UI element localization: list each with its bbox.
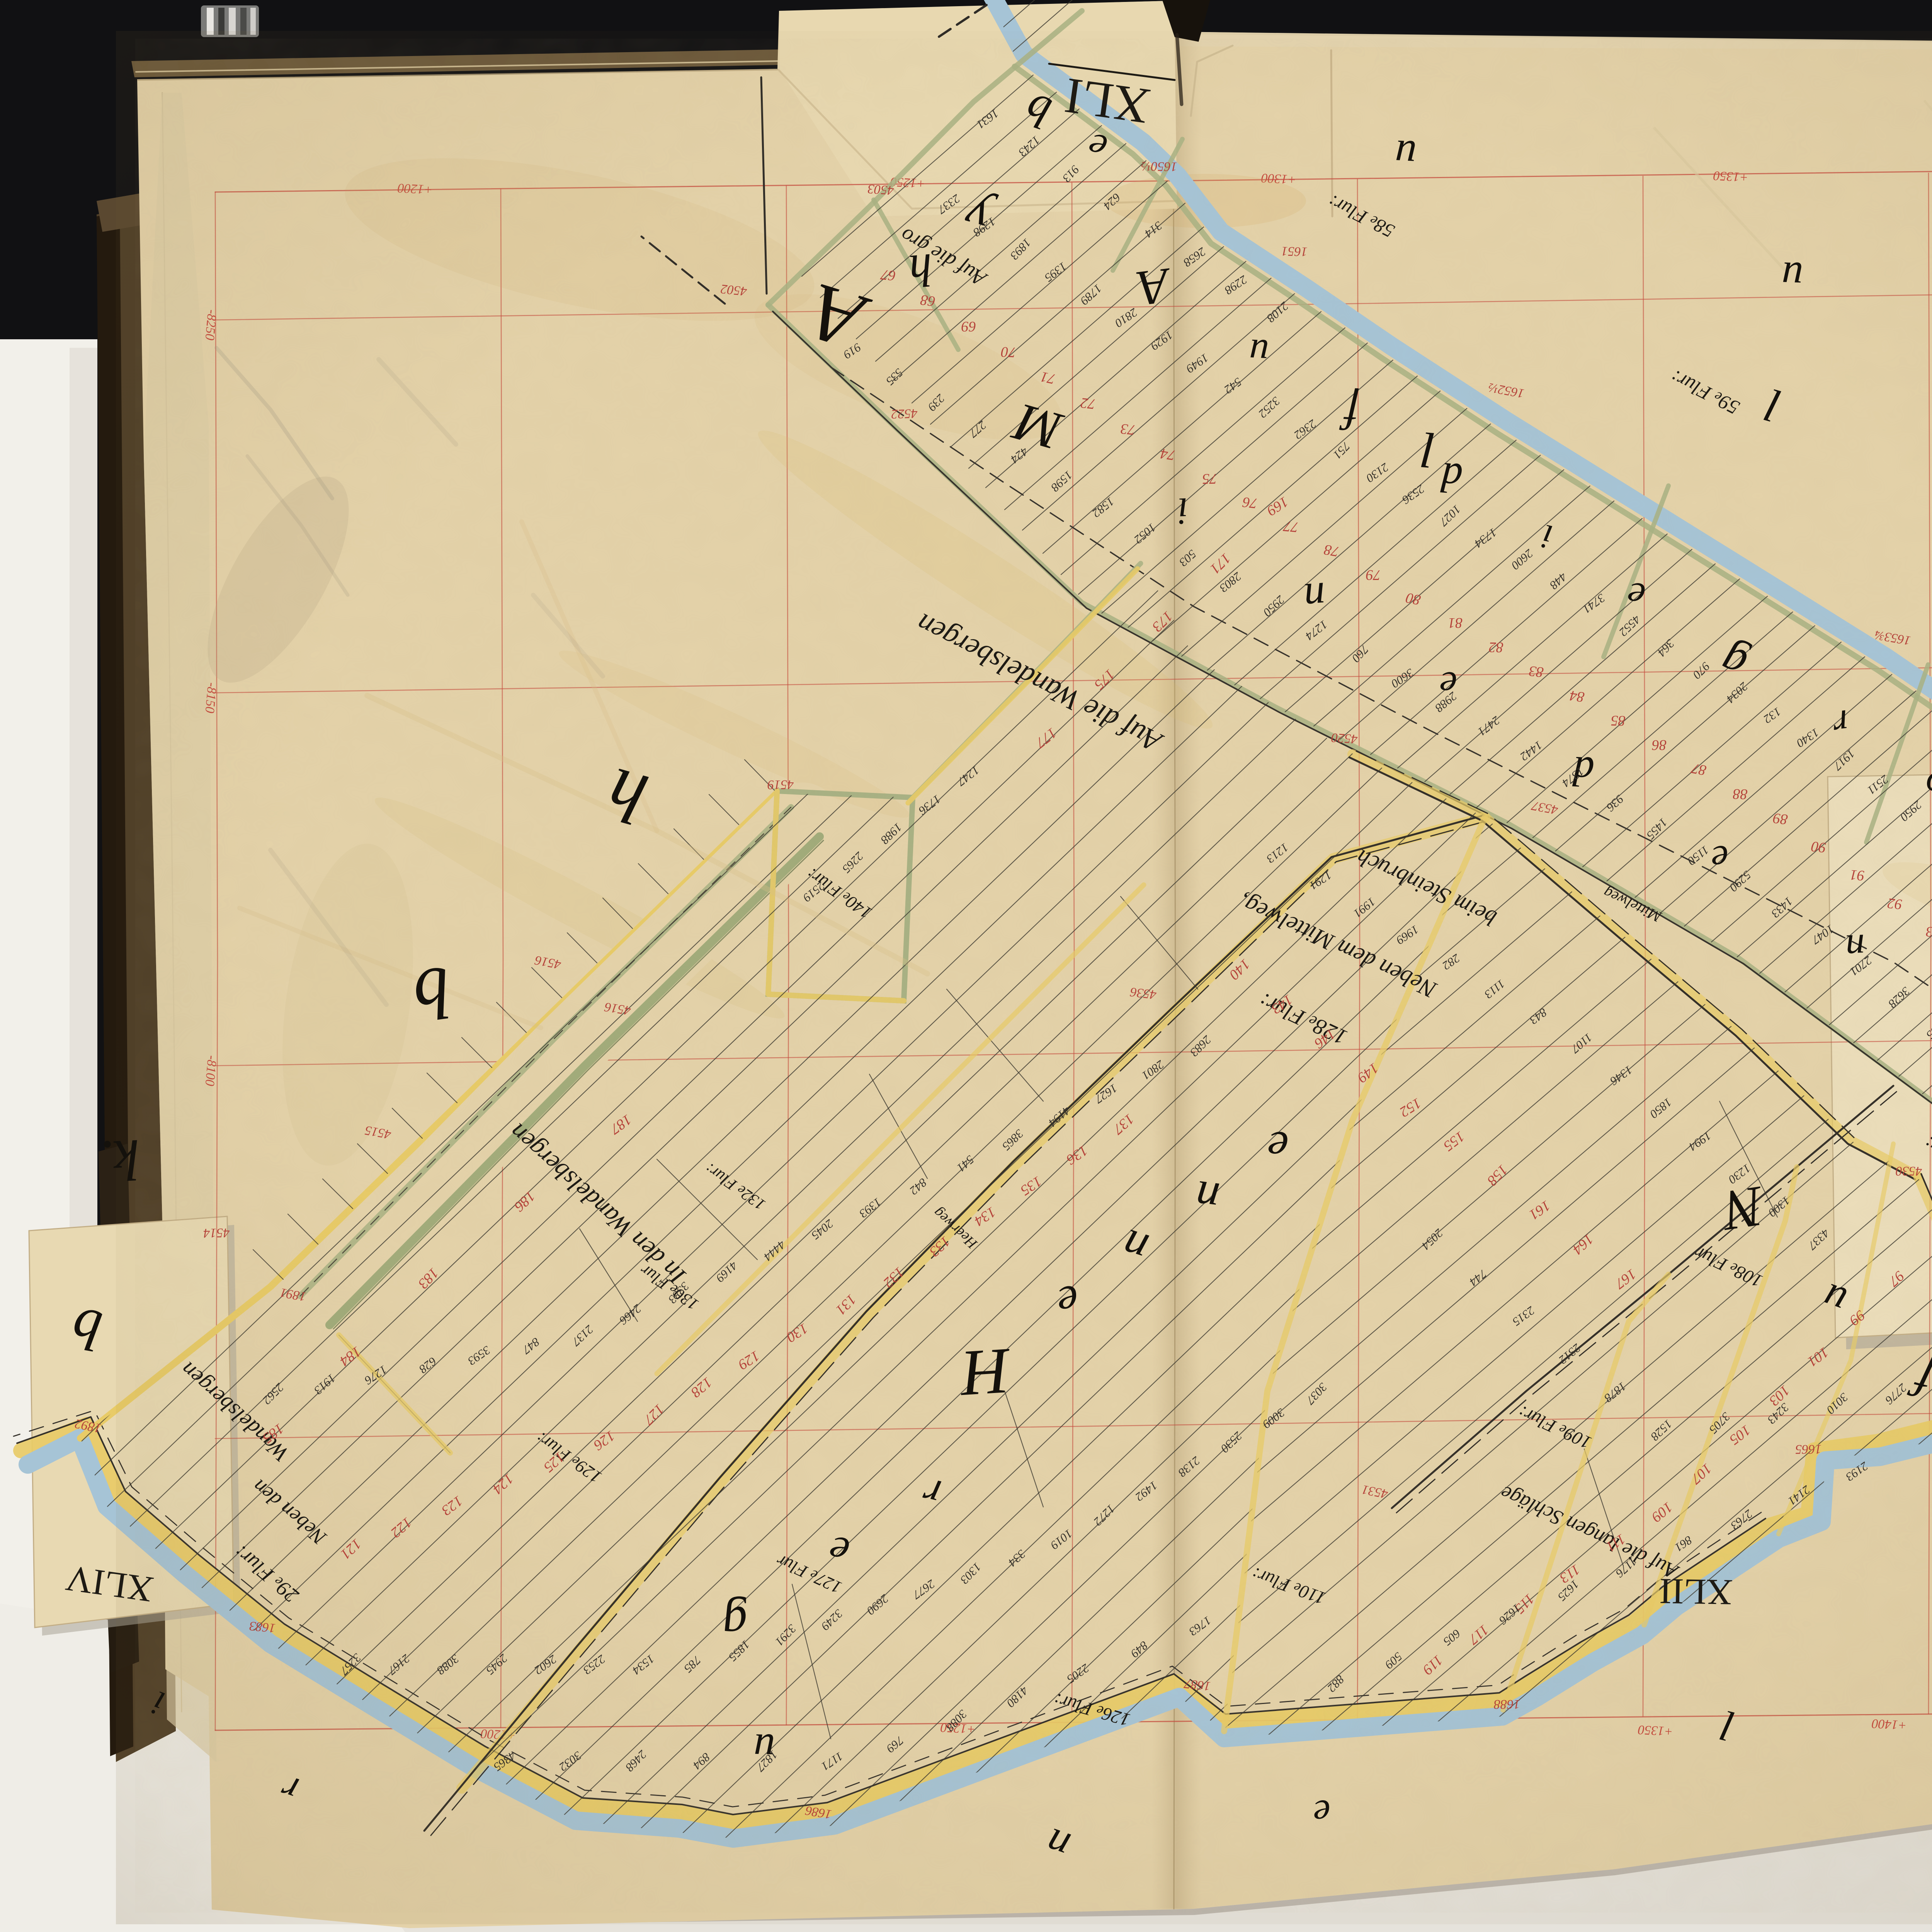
svg-text:i: i [1177, 490, 1189, 533]
svg-text:h: h [907, 244, 935, 297]
svg-text:84: 84 [1569, 687, 1585, 706]
svg-text:69: 69 [961, 318, 976, 335]
svg-text:70: 70 [1001, 344, 1016, 360]
svg-text:78: 78 [1323, 541, 1340, 560]
svg-text:4519: 4519 [767, 777, 794, 792]
svg-text:u: u [1248, 331, 1270, 375]
svg-text:88: 88 [1733, 786, 1748, 803]
svg-text:e: e [1711, 837, 1729, 881]
svg-text:82: 82 [1489, 639, 1503, 655]
svg-text:n: n [1303, 573, 1327, 622]
svg-text:67: 67 [879, 266, 896, 284]
svg-text:4522: 4522 [891, 406, 918, 421]
svg-text:79: 79 [1366, 567, 1381, 583]
svg-text:90: 90 [1810, 838, 1827, 856]
svg-text:4530: 4530 [1896, 1164, 1922, 1178]
svg-text:1651: 1651 [1281, 244, 1308, 259]
svg-text:e: e [1313, 1792, 1331, 1835]
svg-text:73: 73 [1120, 420, 1136, 438]
svg-text:81: 81 [1448, 615, 1463, 631]
svg-text:72: 72 [1080, 395, 1096, 412]
svg-text:1650½: 1650½ [1141, 159, 1177, 174]
svg-text:92: 92 [1887, 895, 1903, 913]
svg-text:4514: 4514 [203, 1225, 230, 1240]
svg-text:XLI: XLI [1061, 67, 1153, 135]
svg-text:1688: 1688 [1494, 1697, 1520, 1711]
svg-text:76: 76 [1242, 494, 1258, 512]
svg-text:4520: 4520 [1331, 730, 1358, 746]
svg-text:H: H [957, 1335, 1013, 1410]
svg-text:85: 85 [1611, 713, 1626, 729]
svg-text:4502: 4502 [720, 282, 747, 299]
svg-text:89: 89 [1772, 810, 1788, 828]
svg-text:e: e [1266, 1121, 1290, 1174]
svg-text:4503: 4503 [867, 182, 894, 198]
svg-text:74: 74 [1159, 445, 1176, 463]
svg-text:68: 68 [920, 291, 937, 310]
svg-text:83: 83 [1528, 663, 1544, 680]
svg-text:u: u [1781, 253, 1804, 301]
svg-text:1665: 1665 [1795, 1442, 1821, 1456]
svg-text:1687: 1687 [1183, 1676, 1211, 1693]
svg-text:u: u [1394, 131, 1418, 179]
svg-text:86: 86 [1652, 737, 1667, 753]
svg-text:1683: 1683 [248, 1619, 276, 1636]
svg-text:75: 75 [1202, 471, 1217, 487]
svg-text:k.: k. [98, 1127, 141, 1193]
svg-text:77: 77 [1282, 518, 1299, 535]
svg-text:4536: 4536 [1129, 985, 1157, 1002]
svg-text:d: d [1439, 454, 1464, 502]
svg-text:91: 91 [1849, 867, 1865, 884]
